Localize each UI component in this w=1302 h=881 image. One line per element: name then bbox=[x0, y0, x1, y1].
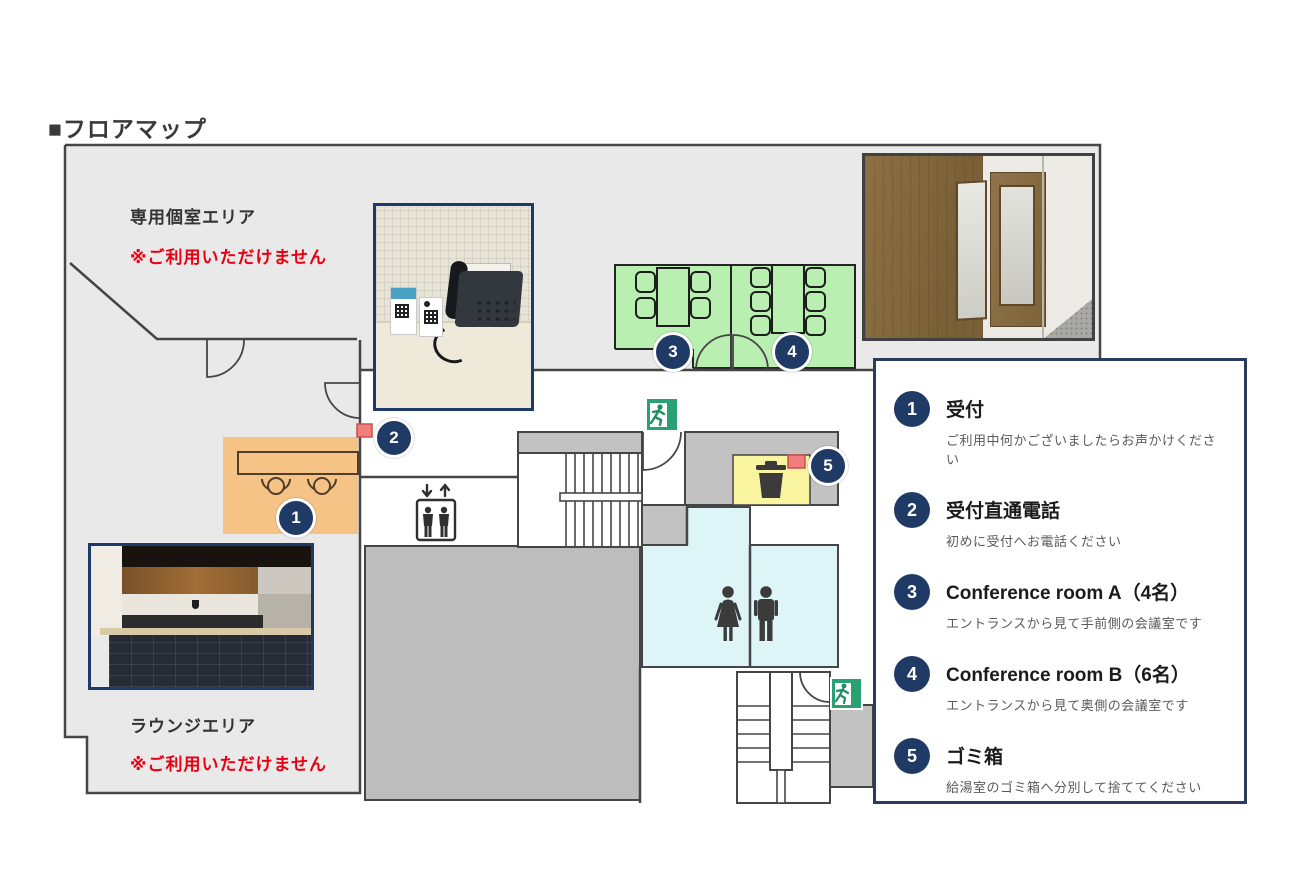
photo-wall-lamp bbox=[192, 600, 199, 609]
legend-badge-4: 4 bbox=[894, 656, 930, 692]
floor-map-page: ■フロアマップ 専用個室エリア ※ご利用いただけません ラウンジエリア ※ご利用… bbox=[0, 0, 1302, 881]
legend-title: Conference room A（4名） bbox=[946, 578, 1202, 605]
legend-title: ゴミ箱 bbox=[946, 742, 1202, 769]
office-block bbox=[365, 546, 640, 800]
photo-qr-card bbox=[419, 297, 443, 337]
conference-rooms bbox=[613, 265, 855, 370]
exit-sign-icon bbox=[646, 398, 678, 431]
stairs-lower bbox=[737, 672, 830, 803]
legend-item-trash: 5 ゴミ箱 給湯室のゴミ箱へ分別して捨ててください bbox=[894, 738, 1224, 796]
legend-description: ご利用中何かございましたらお声かけください bbox=[946, 430, 1224, 468]
map-badge-room-b: 4 bbox=[772, 332, 812, 372]
legend-panel: 1 受付 ご利用中何かございましたらお声かけください 2 受付直通電話 初めに受… bbox=[873, 358, 1247, 804]
stairs-upper bbox=[518, 432, 642, 547]
legend-badge-2: 2 bbox=[894, 492, 930, 528]
pantry-stub bbox=[642, 505, 687, 545]
photo-wall-left bbox=[91, 546, 122, 636]
shaft-block bbox=[830, 705, 873, 787]
legend-badge-3: 3 bbox=[894, 574, 930, 610]
lounge-photo bbox=[88, 543, 314, 690]
legend-title: Conference room B（6名） bbox=[946, 660, 1190, 687]
legend-item-phone: 2 受付直通電話 初めに受付へお電話ください bbox=[894, 492, 1224, 550]
photo-qr-stand-header bbox=[391, 288, 416, 299]
legend-description: 給湯室のゴミ箱へ分別して捨ててください bbox=[946, 777, 1202, 796]
reception-desk bbox=[238, 452, 358, 474]
lounge-area-label: ラウンジエリア bbox=[130, 712, 256, 737]
photo-tiled-counter bbox=[109, 635, 311, 687]
map-badge-phone: 2 bbox=[374, 418, 414, 458]
private-area-notice: ※ご利用いただけません bbox=[130, 243, 327, 268]
legend-badge-1: 1 bbox=[894, 391, 930, 427]
conference-table-a bbox=[636, 268, 710, 326]
phone-location-marker bbox=[357, 424, 372, 437]
page-title: ■フロアマップ bbox=[48, 110, 207, 144]
conference-table-b bbox=[751, 265, 825, 335]
door-swing-arc bbox=[643, 432, 681, 470]
legend-description: エントランスから見て手前側の会議室です bbox=[946, 613, 1202, 632]
legend-title: 受付直通電話 bbox=[946, 496, 1122, 523]
legend-title: 受付 bbox=[946, 395, 1224, 422]
conference-doors-photo bbox=[862, 153, 1095, 341]
elevator-icon bbox=[417, 485, 455, 540]
legend-item-room-b: 4 Conference room B（6名） エントランスから見て奥側の会議室… bbox=[894, 656, 1224, 714]
map-badge-reception: 1 bbox=[276, 498, 316, 538]
exit-sign-icon bbox=[831, 678, 862, 709]
legend-description: 初めに受付へお電話ください bbox=[946, 531, 1122, 550]
qr-code-icon bbox=[395, 304, 409, 318]
map-badge-trash: 5 bbox=[808, 446, 848, 486]
reception-phone-photo bbox=[373, 203, 534, 411]
legend-badge-5: 5 bbox=[894, 738, 930, 774]
private-area-label: 専用個室エリア bbox=[130, 203, 256, 228]
map-badge-room-a: 3 bbox=[653, 332, 693, 372]
photo-counter-top bbox=[100, 628, 311, 635]
photo-card-dot bbox=[424, 301, 430, 307]
legend-description: エントランスから見て奥側の会議室です bbox=[946, 695, 1190, 714]
photo-phone-keypad bbox=[475, 299, 515, 325]
legend-item-reception: 1 受付 ご利用中何かございましたらお声かけください bbox=[894, 391, 1224, 468]
photo-frosted-glass-left bbox=[956, 181, 987, 321]
photo-wall-edge bbox=[1042, 156, 1044, 338]
phone-location-marker bbox=[788, 455, 805, 468]
photo-qr-stand bbox=[390, 287, 417, 335]
lounge-area-notice: ※ご利用いただけません bbox=[130, 750, 327, 775]
qr-code-icon bbox=[424, 310, 438, 324]
legend-item-room-a: 3 Conference room A（4名） エントランスから見て手前側の会議… bbox=[894, 574, 1224, 632]
photo-frosted-glass-right bbox=[999, 185, 1035, 305]
photo-sofa bbox=[122, 615, 263, 628]
photo-ceiling-dark bbox=[91, 546, 311, 567]
